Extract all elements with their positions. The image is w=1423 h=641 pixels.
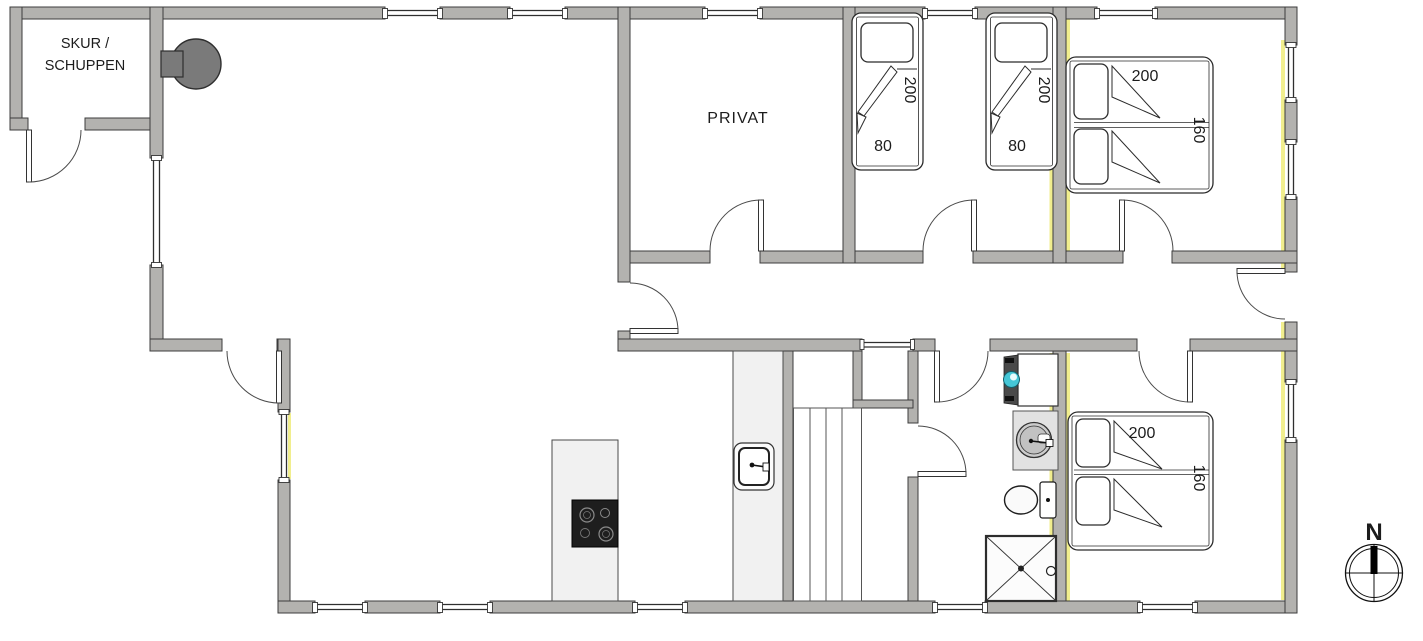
wall-west <box>150 265 163 351</box>
wall-shed-west <box>10 7 22 130</box>
window <box>703 9 763 19</box>
wall-south <box>1195 601 1297 613</box>
hallway-west-door <box>630 283 678 334</box>
cooktop <box>572 500 618 547</box>
wall-closet-top <box>853 400 913 408</box>
wall-north <box>1155 7 1297 19</box>
wall-east <box>1285 322 1297 382</box>
compass: N <box>1345 519 1403 602</box>
pillow <box>1076 419 1110 467</box>
pillow <box>995 23 1047 62</box>
pillow <box>1076 477 1110 525</box>
bathroom-sink <box>1013 411 1058 470</box>
window <box>152 156 162 268</box>
wall-hall-south <box>990 339 1137 351</box>
window <box>508 9 568 19</box>
wall-south <box>685 601 935 613</box>
window <box>1286 43 1296 103</box>
shed-label-line1: SKUR / <box>61 36 110 52</box>
shed-label-line2: SCHUPPEN <box>45 58 126 74</box>
entrance-door-east <box>1237 269 1285 320</box>
wall-hall-north <box>1172 251 1297 263</box>
washing-machine <box>1004 354 1059 406</box>
wall-hall-south <box>1190 339 1297 351</box>
wall-north <box>10 7 385 19</box>
pillow <box>1074 129 1108 184</box>
pillow <box>861 23 913 62</box>
double-bed-south: 200 160 <box>1068 412 1213 550</box>
wall-south <box>985 601 1140 613</box>
kitchen-island <box>552 440 618 601</box>
window <box>923 9 978 19</box>
wall-shed-south <box>10 118 28 130</box>
window <box>1286 140 1296 200</box>
shed-door <box>27 130 82 182</box>
bed-length-label: 200 <box>1129 425 1156 442</box>
wall-notch-south <box>150 339 222 351</box>
single-bed-1: 200 80 <box>852 13 923 170</box>
pillow <box>1074 64 1108 119</box>
wardrobe-slats <box>794 408 862 601</box>
window <box>438 603 493 613</box>
window <box>383 9 443 19</box>
bathroom-utility-door <box>918 426 966 477</box>
window <box>1286 380 1296 443</box>
wall-south <box>365 601 440 613</box>
privat-door <box>710 200 764 251</box>
terrace-door <box>227 351 282 403</box>
bed-width-label: 160 <box>1190 465 1207 492</box>
bed-width-label: 80 <box>1008 138 1026 155</box>
wall-east <box>1285 7 1297 45</box>
wood-stove <box>161 39 221 89</box>
wall-south <box>278 601 315 613</box>
bed-width-label: 160 <box>1190 117 1207 144</box>
twin-room-door <box>923 200 977 251</box>
bathroom <box>986 354 1058 601</box>
wall-east <box>1285 100 1297 142</box>
south-bedroom-door <box>1139 351 1193 402</box>
kitchen-sink <box>734 443 774 490</box>
window <box>1095 9 1158 19</box>
wall-kitchen-east <box>783 351 793 601</box>
wall-hall-south <box>618 339 862 351</box>
wall-hall-north <box>618 251 710 263</box>
bed-length-label: 200 <box>1035 77 1052 104</box>
wall-privat-west <box>618 7 630 282</box>
wall-closet-stub <box>853 351 862 400</box>
wall-west-lower <box>278 480 290 613</box>
wall-north <box>565 7 705 19</box>
compass-needle <box>1371 546 1378 574</box>
floor-plan-page: 200 80 200 80 200 160 200 160 <box>0 0 1423 641</box>
kitchen-counter <box>733 351 783 601</box>
double-bed-north: 200 160 <box>1066 57 1213 193</box>
wall-hall-north <box>760 251 923 263</box>
window <box>1138 603 1198 613</box>
wall-south <box>490 601 635 613</box>
wall-west <box>150 7 163 158</box>
window <box>313 603 368 613</box>
wall-bathroom-west <box>908 351 918 423</box>
window <box>633 603 688 613</box>
toilet <box>1005 482 1057 518</box>
closet-sliding-doors <box>860 340 915 350</box>
wall-east <box>1285 440 1297 613</box>
bathroom-hall-door <box>935 351 989 402</box>
privat-label: PRIVAT <box>707 110 768 127</box>
single-bed-2: 200 80 <box>986 13 1057 170</box>
window <box>933 603 988 613</box>
bed-length-label: 200 <box>1132 68 1159 85</box>
wall-north <box>440 7 510 19</box>
bed-length-label: 200 <box>901 77 918 104</box>
north-bedroom-door <box>1120 200 1174 251</box>
compass-north-label: N <box>1365 519 1382 546</box>
window <box>279 410 289 483</box>
bed-width-label: 80 <box>874 138 892 155</box>
wall-bathroom-west <box>908 477 918 601</box>
wall-hall-north <box>973 251 1123 263</box>
wall-hall-south <box>913 339 935 351</box>
shower <box>986 536 1056 601</box>
floor-plan-drawing: 200 80 200 80 200 160 200 160 <box>0 0 1423 641</box>
